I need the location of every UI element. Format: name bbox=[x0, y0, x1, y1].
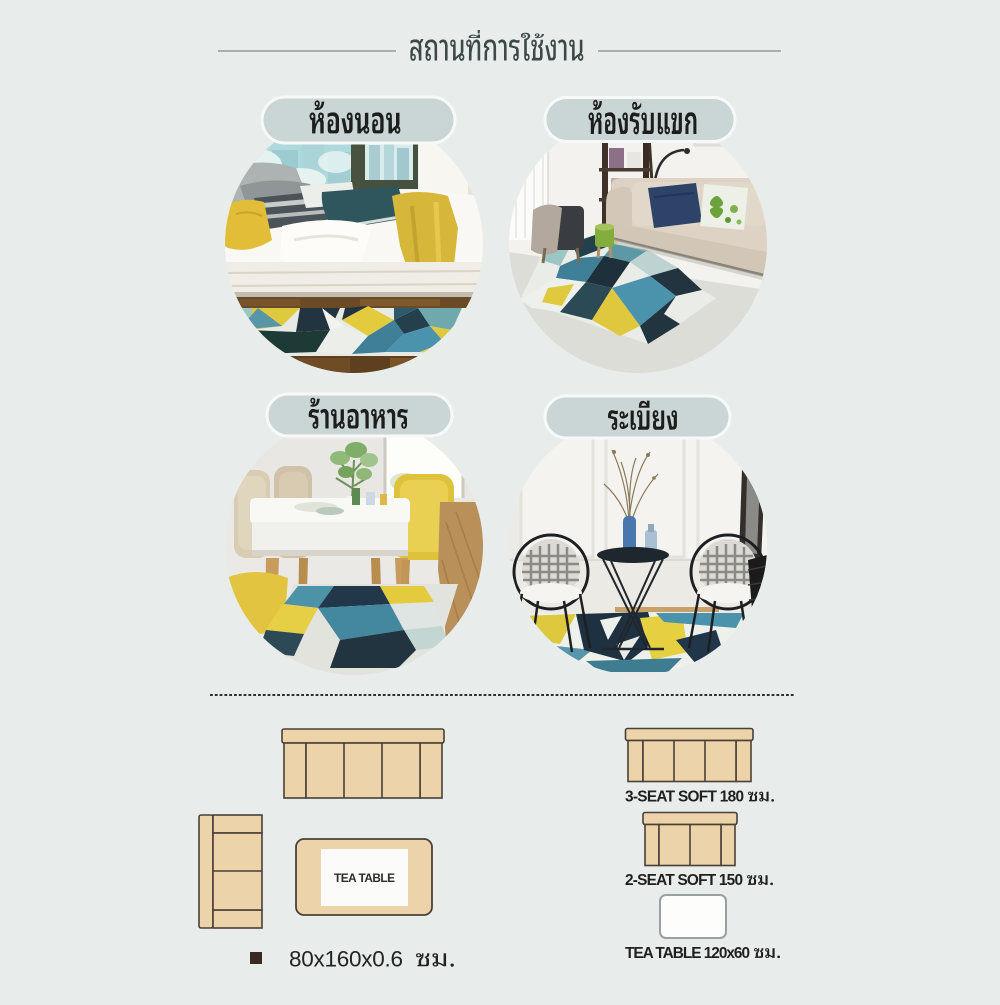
svg-text:2-SEAT SOFT 150: 2-SEAT SOFT 150 bbox=[625, 872, 743, 889]
svg-text:80x160x0.6: 80x160x0.6 bbox=[289, 947, 403, 972]
svg-text:TEA TABLE 120x60: TEA TABLE 120x60 bbox=[625, 945, 750, 962]
svg-text:TEA TABLE: TEA TABLE bbox=[334, 871, 395, 885]
svg-text:3-SEAT SOFT 180: 3-SEAT SOFT 180 bbox=[625, 789, 744, 806]
